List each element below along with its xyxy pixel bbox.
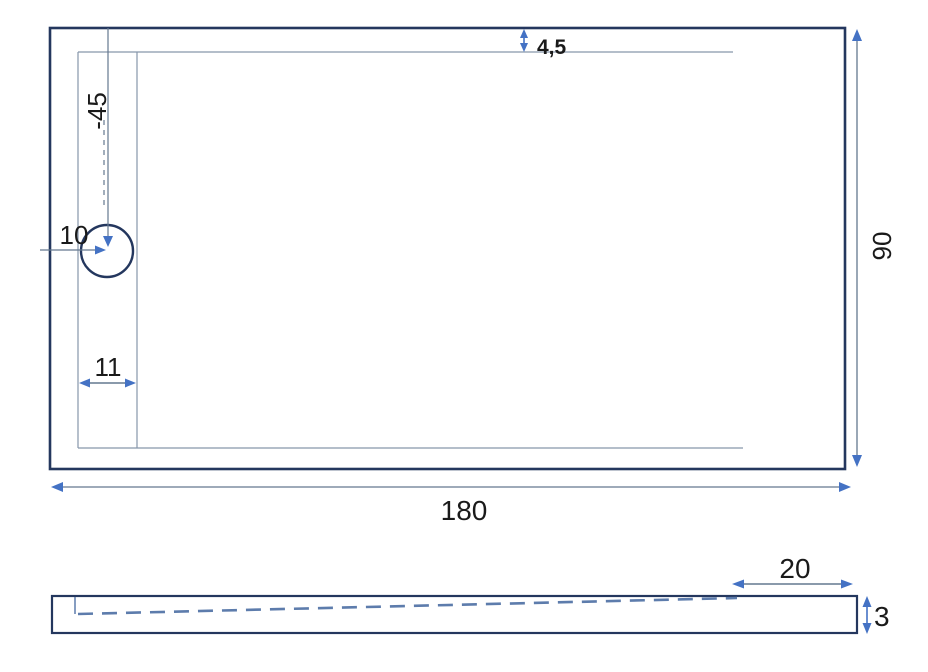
dim-flat-zone: 20 [732,553,853,589]
arrowhead-right-icon [95,246,106,255]
arrowhead-left-icon [732,580,744,589]
dim-flat-zone-label: 20 [779,553,810,584]
dim-tray-width-label: 90 [867,232,897,261]
technical-drawing-canvas: 4,5 -45 10 11 [0,0,928,672]
tray-outline-rect [50,28,845,469]
arrowhead-left-icon [51,482,63,492]
arrowhead-up-icon [520,29,528,38]
arrowhead-right-icon [839,482,851,492]
arrowhead-down-icon [520,43,528,52]
arrowhead-right-icon [125,379,136,388]
arrowhead-down-icon [103,236,113,247]
arrowhead-down-icon [863,623,872,634]
dim-drain-vertical: -45 [82,28,113,247]
dim-ledge-width-label: 11 [95,352,122,382]
dim-tray-length: 180 [51,482,851,526]
drain-circle [81,225,133,277]
arrowhead-up-icon [852,29,862,41]
arrowhead-down-icon [852,455,862,467]
arrowhead-left-icon [79,379,90,388]
arrowhead-right-icon [841,580,853,589]
dim-rim-inset-label: 4,5 [537,36,567,59]
dim-rim-inset: 4,5 [520,29,567,59]
dim-thickness-label: 3 [874,601,890,632]
dim-tray-length-label: 180 [441,495,488,526]
dim-drain-vertical-label: -45 [82,92,112,130]
arrowhead-up-icon [863,596,872,607]
dim-drain-horizontal-label: 10 [60,220,89,250]
shower-tray-drawing: 4,5 -45 10 11 [0,0,928,672]
dim-ledge-width: 11 [79,352,136,388]
top-view: 4,5 -45 10 11 [40,28,897,526]
dim-tray-width: 90 [852,29,897,467]
side-view: 20 3 [52,553,890,634]
dim-thickness: 3 [863,596,890,634]
profile-outline-rect [52,596,857,633]
